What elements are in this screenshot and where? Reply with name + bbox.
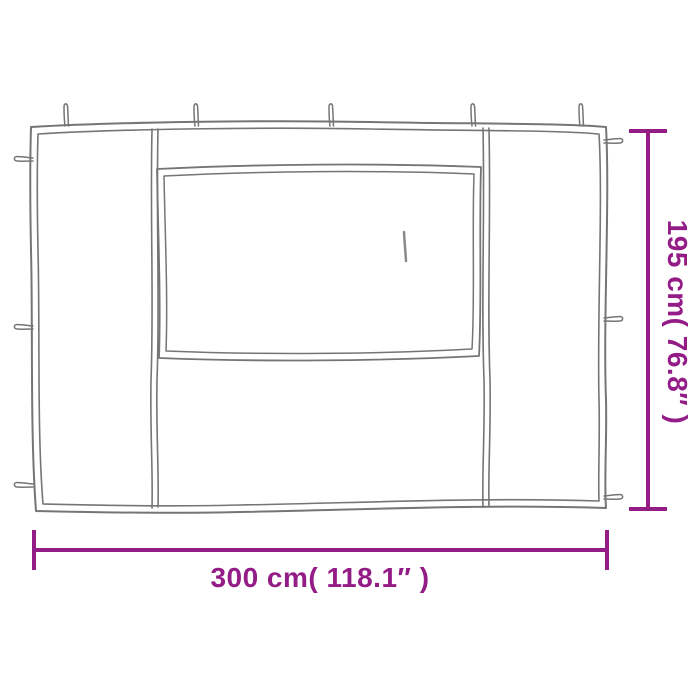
dimension-lines [34, 131, 667, 570]
wall-outer-edge [30, 121, 607, 513]
hook-tab-icon [64, 104, 69, 126]
wall-inner-hem [37, 128, 600, 506]
loop-tab-icon [14, 483, 33, 488]
window-inner-frame [164, 172, 474, 354]
window-outer-frame [157, 165, 481, 361]
hook-tab-icon [579, 104, 584, 126]
panel-seam-right [483, 128, 490, 507]
height-dimension-label: 195 cm( 76.8″ ) [661, 172, 693, 472]
sidewall-outline-group [14, 104, 622, 513]
zipper-pull-mark [404, 232, 406, 261]
hook-tab-icon [329, 104, 334, 126]
sidewall-drawing [0, 0, 700, 700]
product-diagram-canvas: 300 cm( 118.1″ ) 195 cm( 76.8″ ) [0, 0, 700, 700]
loop-tab-icon [14, 325, 33, 330]
width-dimension-label: 300 cm( 118.1″ ) [155, 562, 485, 594]
loop-tab-icon [604, 317, 623, 322]
loop-tab-icon [604, 495, 623, 500]
